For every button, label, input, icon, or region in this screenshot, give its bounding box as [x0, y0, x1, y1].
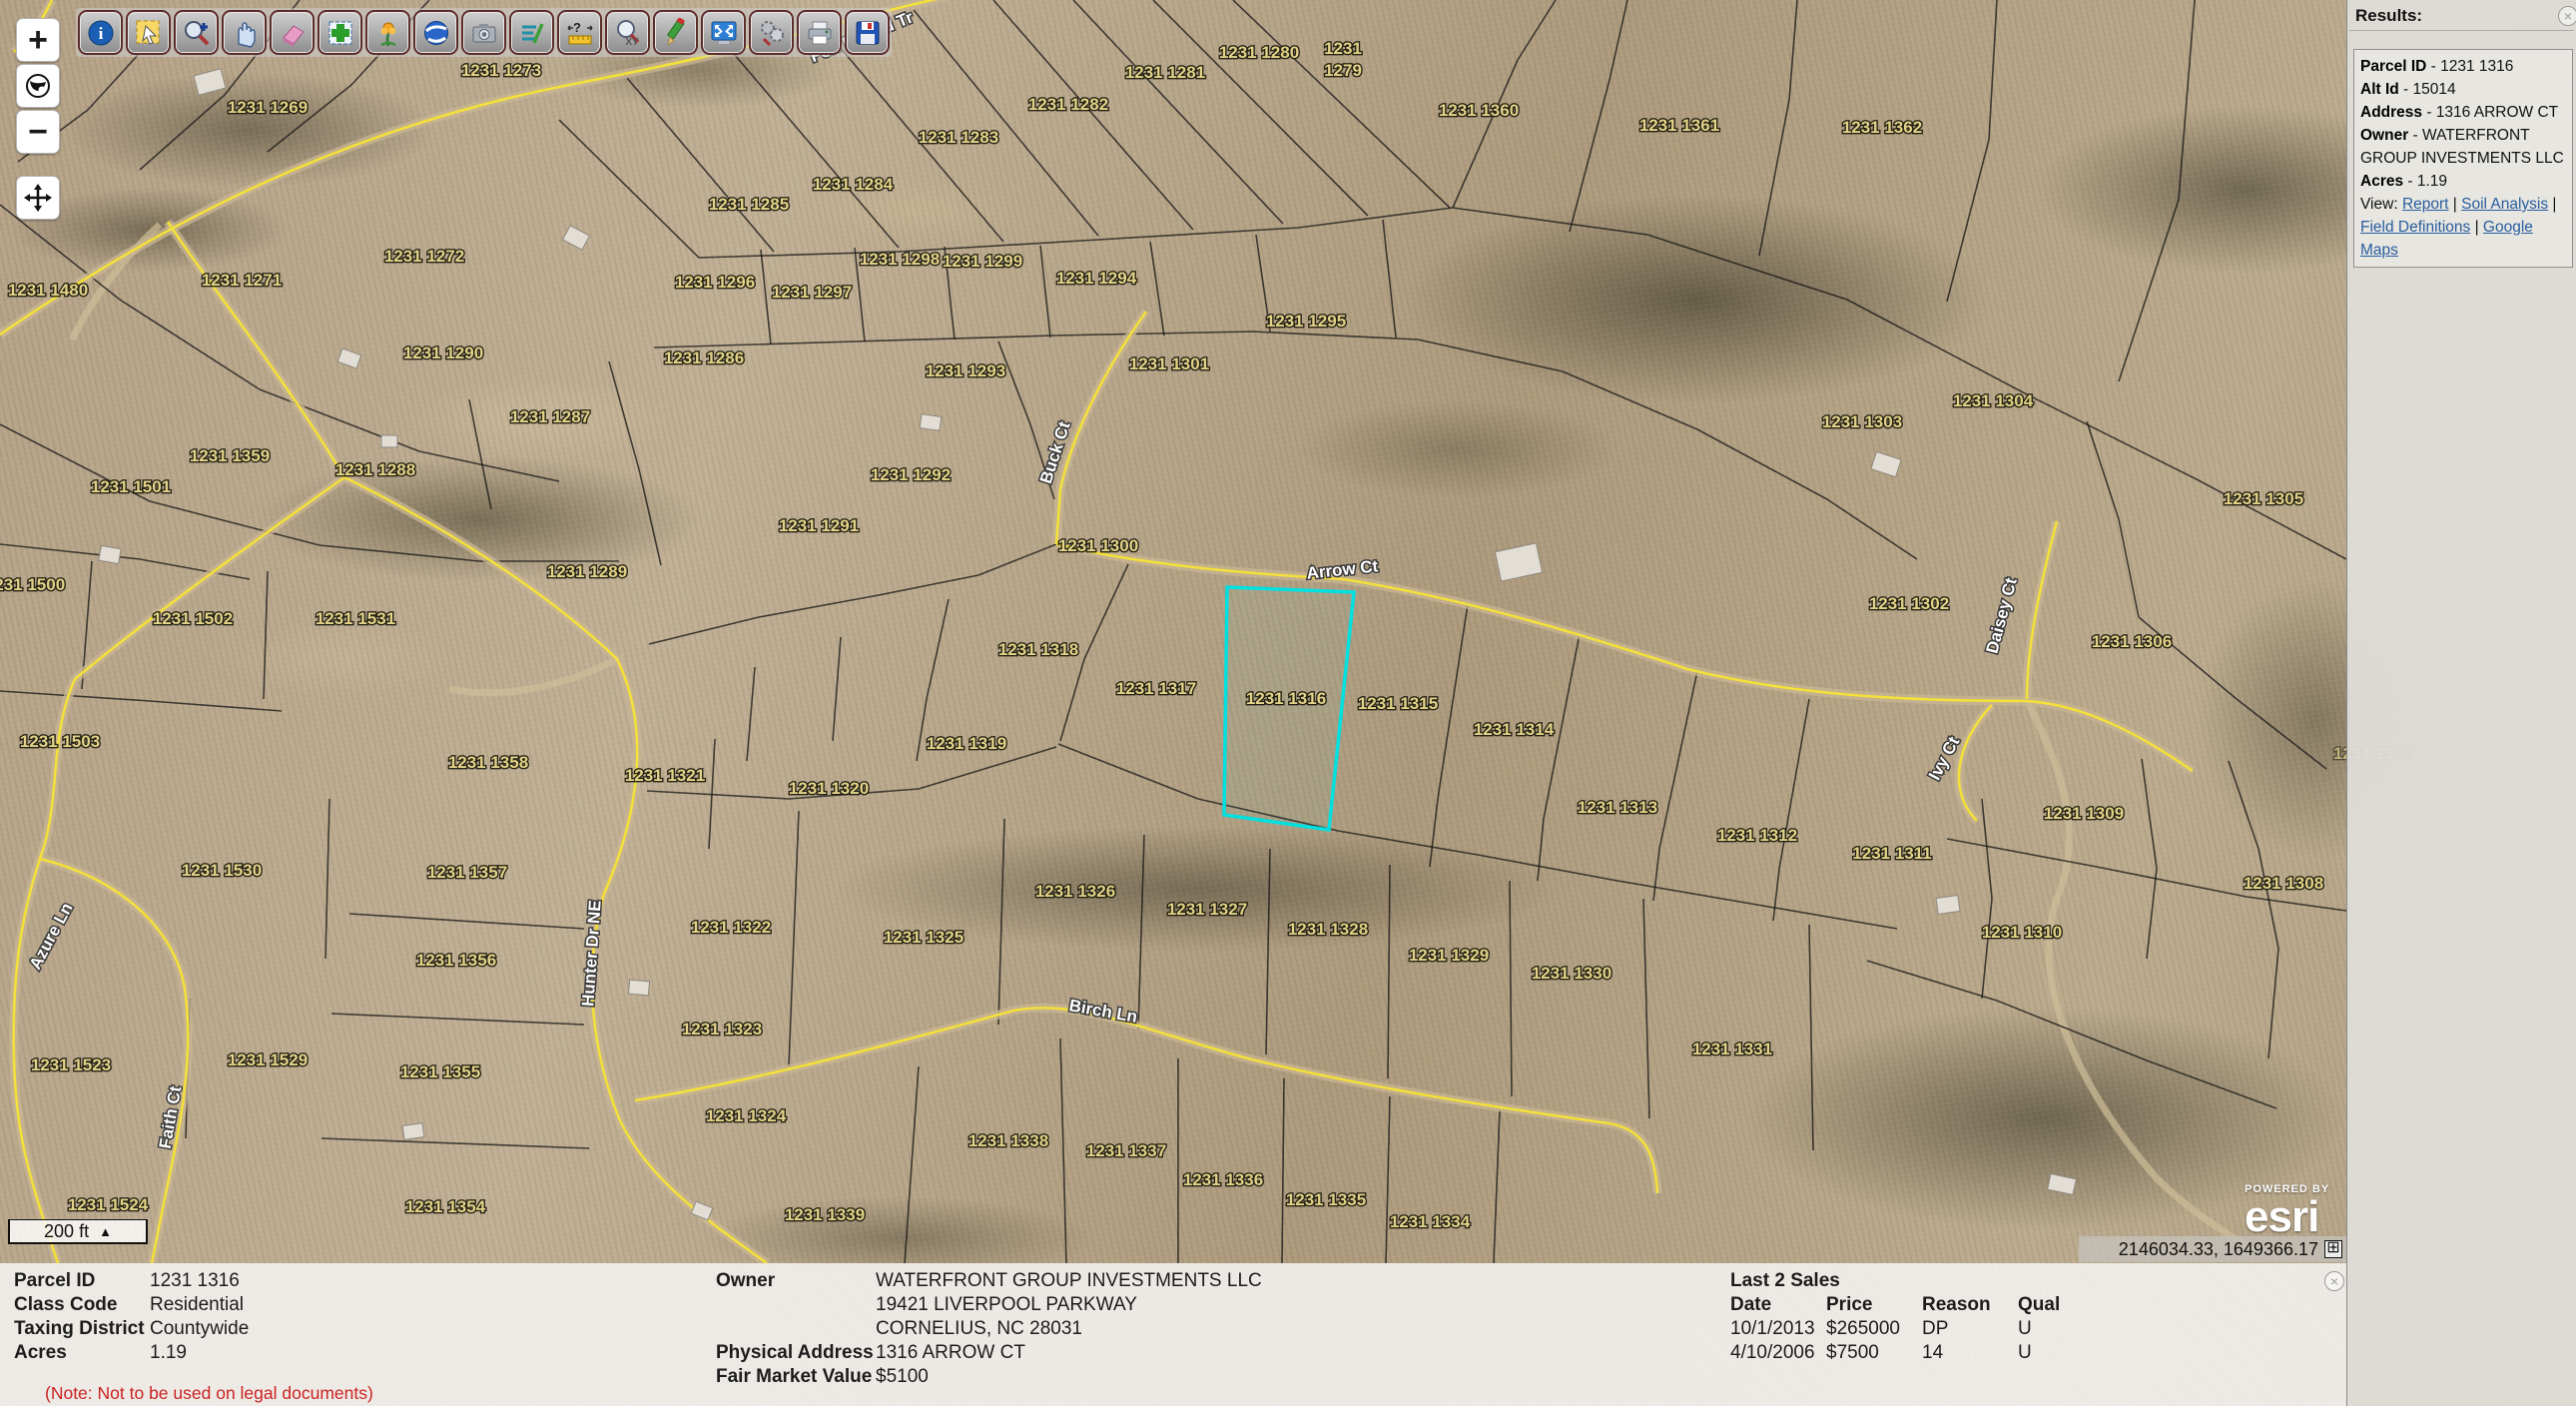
svg-text:?: ?: [573, 20, 581, 35]
info-button[interactable]: i: [78, 10, 123, 55]
soil-analysis-link[interactable]: Soil Analysis: [2461, 196, 2548, 213]
parcel-label: 1231 1319: [927, 734, 1006, 753]
parcel-label: 1231 1355: [400, 1062, 480, 1081]
parcel-boundary: [331, 1014, 584, 1025]
pan-mode-button[interactable]: [16, 176, 60, 220]
parcel-boundary: [1538, 634, 1580, 881]
parcel-label: 1231 1288: [335, 460, 415, 479]
parcel-label: 1231 1308: [2244, 874, 2323, 893]
zoom-in-map-button[interactable]: +: [16, 18, 60, 62]
parcel-boundary: [469, 399, 491, 509]
parcel-boundary: [349, 914, 584, 929]
parcel-label: 1231 1480: [8, 281, 88, 300]
parcel-label: 1231 1337: [1086, 1141, 1166, 1160]
parcel-label: 1231 1328: [1288, 920, 1368, 939]
parcel-detail-panel: Parcel ID1231 1316 Class CodeResidential…: [0, 1263, 2346, 1406]
parcel-boundary: [1040, 246, 1050, 338]
sales-title: Last 2 Sales: [1730, 1269, 2114, 1293]
parcel-boundary: [627, 78, 774, 252]
parcel-label: 1231 1320: [789, 779, 869, 798]
parcel-label: 1231 1304: [1953, 391, 2034, 410]
road-label: Birch Ln: [1067, 996, 1138, 1027]
globe-home-button[interactable]: [16, 64, 60, 108]
parcel-boundary: [639, 469, 661, 565]
parcel-boundary: [1510, 881, 1512, 1096]
parcel-label: 1231 1529: [228, 1051, 308, 1069]
coordinate-readout: 2146034.33, 1649366.17 ⊞: [2079, 1236, 2346, 1262]
parcel-label: 1231 1500: [0, 575, 65, 594]
parcel-label: 1231 1309: [2044, 804, 2124, 823]
parcel-label: 1231 1316: [1246, 689, 1326, 708]
parcel-label: 1231 1327: [1167, 900, 1247, 919]
parcel-label: 1231 1357: [427, 863, 507, 882]
parcel-label: 1231 1284: [813, 175, 894, 194]
parcel-label: 1231 1296: [675, 273, 755, 292]
parcel-label: 1231 1530: [182, 861, 262, 880]
parcel-label: 1231 1329: [1409, 946, 1489, 965]
globe-icon: [24, 72, 52, 100]
parcel-label: 1231 1358: [448, 753, 528, 772]
esri-credit: POWERED BY esri: [2245, 1184, 2329, 1239]
parcel-label: 1231 1297: [772, 283, 852, 302]
eraser-button[interactable]: [270, 10, 315, 55]
building: [194, 69, 226, 96]
move-arrows-icon: [24, 184, 52, 212]
parcel-label: 1231 1294: [1056, 269, 1137, 288]
parcel-boundary: [1266, 849, 1270, 1054]
parcel-label: 1231 1503: [20, 732, 100, 751]
parcel-boundary: [609, 361, 639, 469]
parcel-boundary: [1563, 371, 1917, 559]
road-casing: [344, 477, 767, 1263]
parcel-label: 1231 1338: [968, 1131, 1048, 1150]
parcel-boundary: [1653, 671, 1697, 901]
parcel-label: 1231 1310: [1982, 923, 2062, 942]
parcel-label: 1231 1356: [416, 951, 496, 970]
add-selection-button[interactable]: [318, 10, 362, 55]
parcel-boundary: [559, 120, 1453, 258]
building: [381, 435, 397, 447]
parcel-label: 1231 1361: [1639, 116, 1719, 135]
parcel-boundary: [833, 637, 841, 741]
parcel-boundary: [1759, 0, 1797, 256]
last-sales: Last 2 Sales DatePrice ReasonQual 10/1/2…: [1730, 1269, 2114, 1365]
parcel-summary: Parcel ID1231 1316 Class CodeResidential…: [14, 1269, 249, 1365]
parcel-label: 1231 1299: [943, 252, 1022, 271]
building: [691, 1201, 713, 1220]
svg-text:i: i: [98, 24, 103, 43]
parcel-label: 1231 1302: [1869, 594, 1949, 613]
sales-row: 4/10/2006$7500 14U: [1730, 1341, 2114, 1365]
gis-parcel-viewer: { "toolbar": { "buttons": [ {"icon":"inf…: [0, 0, 2576, 1406]
results-title: Results:: [2355, 6, 2576, 26]
parcel-boundary: [1773, 699, 1809, 921]
road-centerline: [635, 1008, 1657, 1193]
building: [402, 1123, 424, 1140]
results-sidebar: Results: × Parcel ID - 1231 1316 Alt Id …: [2346, 0, 2576, 1406]
road-label: Hunter Dr NE: [578, 900, 604, 1008]
parcel-label: 1231 1272: [384, 247, 464, 266]
parcel-boundary: [1282, 1078, 1284, 1263]
parcel-label: 1231 1321: [625, 766, 705, 785]
parcel-label: 1231 1271: [202, 271, 282, 290]
parcel-boundary: [1138, 835, 1144, 1031]
parcel-boundary: [1386, 1096, 1390, 1263]
parcel-boundary: [2119, 0, 2195, 381]
parcel-boundary: [1947, 0, 1997, 302]
parcel-label: 1231 1531: [316, 609, 395, 628]
zoom-out-map-button[interactable]: −: [16, 110, 60, 154]
parcel-boundary: [905, 1066, 919, 1263]
parcel-boundary: [0, 691, 282, 711]
parcel-label: 1231 1324: [706, 1106, 787, 1125]
measure-button[interactable]: ?: [557, 10, 602, 55]
parcel-label: 1231 1301: [1129, 354, 1209, 373]
parcel-label: 1231 1303: [1822, 412, 1902, 431]
parcel-boundary: [325, 799, 329, 959]
parcel-label: 1231 1323: [682, 1020, 762, 1039]
parcel-label: 1231 1362: [1842, 118, 1922, 137]
parcel-label: 1231 1285: [709, 195, 789, 214]
parcel-boundary: [1570, 0, 1627, 232]
road-centerline: [344, 477, 767, 1263]
sales-header-row: DatePrice ReasonQual: [1730, 1293, 2114, 1317]
parcel-label: 1231 1326: [1035, 882, 1115, 901]
parcel-boundary: [1153, 0, 1368, 216]
parcel-label: 1231 1359: [190, 446, 270, 465]
parcel-label: 1231 1501: [91, 477, 171, 496]
parcel-label: 1231 1292: [871, 465, 951, 484]
parcel-boundary: [1494, 1110, 1500, 1263]
parcel-boundary: [747, 667, 755, 761]
parcel-label: 1231 1305: [2224, 489, 2303, 508]
building: [337, 349, 361, 368]
parcel-label: 1231 1360: [1439, 101, 1519, 120]
parcel-boundary: [761, 250, 771, 345]
parcel-boundary: [1809, 925, 1813, 1150]
building: [1495, 543, 1542, 581]
building: [2048, 1173, 2077, 1194]
parcel-label: 1231 1287: [510, 407, 590, 426]
tools-button[interactable]: [749, 10, 794, 55]
parcel-boundary: [1233, 0, 1450, 208]
print-button[interactable]: [797, 10, 842, 55]
building: [628, 980, 649, 996]
parcel-label: 1231 1502: [153, 609, 233, 628]
google-earth-button[interactable]: [413, 10, 458, 55]
map-toolbar: i ? XY: [76, 8, 892, 57]
draw-pencil-button[interactable]: [653, 10, 698, 55]
result-item: Parcel ID - 1231 1316 Alt Id - 15014 Add…: [2353, 49, 2573, 268]
parcel-label: 1231 1339: [785, 1205, 865, 1224]
parcel-boundary: [993, 0, 1193, 230]
parcel-label: 1231 1325: [884, 928, 964, 947]
edit-results-button[interactable]: [509, 10, 554, 55]
road-casing: [2027, 521, 2057, 699]
photo-button[interactable]: [461, 10, 506, 55]
zoom-in-button[interactable]: [174, 10, 219, 55]
road-label: Azure Ln: [26, 900, 77, 973]
parcel-boundary: [2142, 759, 2157, 959]
parcel-boundary: [1643, 899, 1649, 1118]
select-parcel-button[interactable]: [126, 10, 171, 55]
dirt-track: [2027, 701, 2256, 1253]
parcel-label: 1231 1298: [860, 250, 940, 269]
highlighted-parcel[interactable]: [1224, 587, 1354, 830]
building: [1936, 896, 1960, 915]
parcel-label: 1231 1335: [1286, 1190, 1366, 1209]
results-divider: [2349, 30, 2574, 31]
report-link[interactable]: Report: [2402, 196, 2449, 213]
coordinate-format-icon[interactable]: ⊞: [2324, 1240, 2342, 1258]
parcel-label: 1231 1312: [1717, 826, 1797, 845]
parcel-boundary: [322, 1138, 589, 1148]
parcel-label: 1231 1286: [664, 349, 744, 367]
parcel-label: 1231 1291: [779, 516, 859, 535]
parcel-label: 1231 1322: [691, 918, 771, 937]
parcel-boundary: [998, 819, 1004, 1025]
parcel-boundary: [729, 48, 899, 248]
parcel-label: 1231 1330: [1532, 964, 1611, 983]
search-xy-button[interactable]: XY: [605, 10, 650, 55]
scale-label: 200 ft: [44, 1221, 89, 1242]
parcel-boundary: [1383, 220, 1396, 338]
parcel-boundary: [1388, 865, 1390, 1078]
parcel-label: 1231 1331: [1692, 1040, 1772, 1058]
parcel-label: 1231 1523: [31, 1055, 111, 1074]
building: [920, 414, 942, 431]
parcel-label: 1231 1524: [68, 1195, 149, 1214]
parcel-overlay: Fox Hound TrBuck CtArrow CtDaisey CtIvy …: [0, 0, 2576, 1263]
svg-text:XY: XY: [625, 37, 639, 48]
parcel-label: 1231 1269: [228, 98, 308, 117]
parcel-label: 1231 1295: [1266, 312, 1346, 331]
parcel-boundary: [914, 10, 1098, 236]
parcel-label: 1231 1283: [919, 128, 998, 147]
parcel-label: 1279: [1324, 61, 1362, 80]
parcel-label: 1231: [1324, 39, 1362, 58]
view-links: View: Report | Soil Analysis | Field Def…: [2360, 193, 2566, 262]
parcel-label: 1231 1354: [405, 1197, 486, 1216]
parcel-label: 1231 1314: [1474, 720, 1555, 739]
parcel-boundary: [1060, 1039, 1066, 1263]
sales-row: 10/1/2013$265000 DPU: [1730, 1317, 2114, 1341]
parcel-label: 1231 1306: [2092, 632, 2172, 651]
parcel-label: 1231 1293: [926, 361, 1005, 380]
save-button[interactable]: [845, 10, 890, 55]
parcel-boundary: [1867, 961, 2276, 1108]
pan-button[interactable]: [222, 10, 267, 55]
dirt-track: [449, 659, 617, 693]
close-detail-panel-button[interactable]: ×: [2324, 1271, 2344, 1291]
road-label: Daisey Ct: [1982, 575, 2020, 655]
parcel-label: 1231 1289: [547, 562, 627, 581]
parcel-boundary: [1150, 242, 1164, 336]
parcel-boundary: [649, 544, 1056, 644]
parcel-boundary: [1982, 799, 1992, 999]
parcel-label: 1231 1280: [1219, 43, 1299, 62]
parcel-label: 1231 1334: [1390, 1212, 1471, 1231]
parcel-boundary: [789, 811, 799, 1066]
building: [1871, 451, 1901, 476]
close-results-button[interactable]: ×: [2558, 6, 2576, 26]
full-extent-button[interactable]: [701, 10, 746, 55]
parcel-label: 1231 1313: [1578, 798, 1657, 817]
field-definitions-link[interactable]: Field Definitions: [2360, 219, 2470, 236]
parcel-label: 1231 1317: [1116, 679, 1196, 698]
building: [563, 226, 590, 250]
legal-note: (Note: Not to be used on legal documents…: [45, 1383, 373, 1404]
parcel-label: 1231 1273: [461, 61, 541, 80]
parcel-label: 1231 1311: [1852, 844, 1931, 863]
parcel-label: 1231 1336: [1183, 1170, 1263, 1189]
scale-bar[interactable]: 200 ft ▲: [8, 1219, 148, 1244]
parcel-label: 1231 1290: [403, 344, 483, 362]
parcel-boundary: [1430, 604, 1468, 867]
owner-details: OwnerWATERFRONT GROUP INVESTMENTS LLC 19…: [716, 1269, 1262, 1389]
marker-flag-button[interactable]: [365, 10, 410, 55]
parcel-label: 1231 1281: [1125, 63, 1205, 82]
road-casing: [635, 1008, 1657, 1193]
parcel-boundary: [2229, 761, 2278, 1058]
parcel-label: 1231 1300: [1058, 536, 1138, 555]
parcel-boundary: [1453, 208, 2346, 559]
scale-dropdown-icon[interactable]: ▲: [99, 1224, 112, 1239]
parcel-boundary: [2087, 421, 2139, 617]
parcel-label: 1231 1315: [1358, 694, 1438, 713]
parcel-label: 1231 1282: [1028, 95, 1108, 114]
building: [99, 545, 121, 563]
parcel-label: 1231 1318: [998, 640, 1078, 659]
parcel-boundary: [264, 571, 268, 699]
